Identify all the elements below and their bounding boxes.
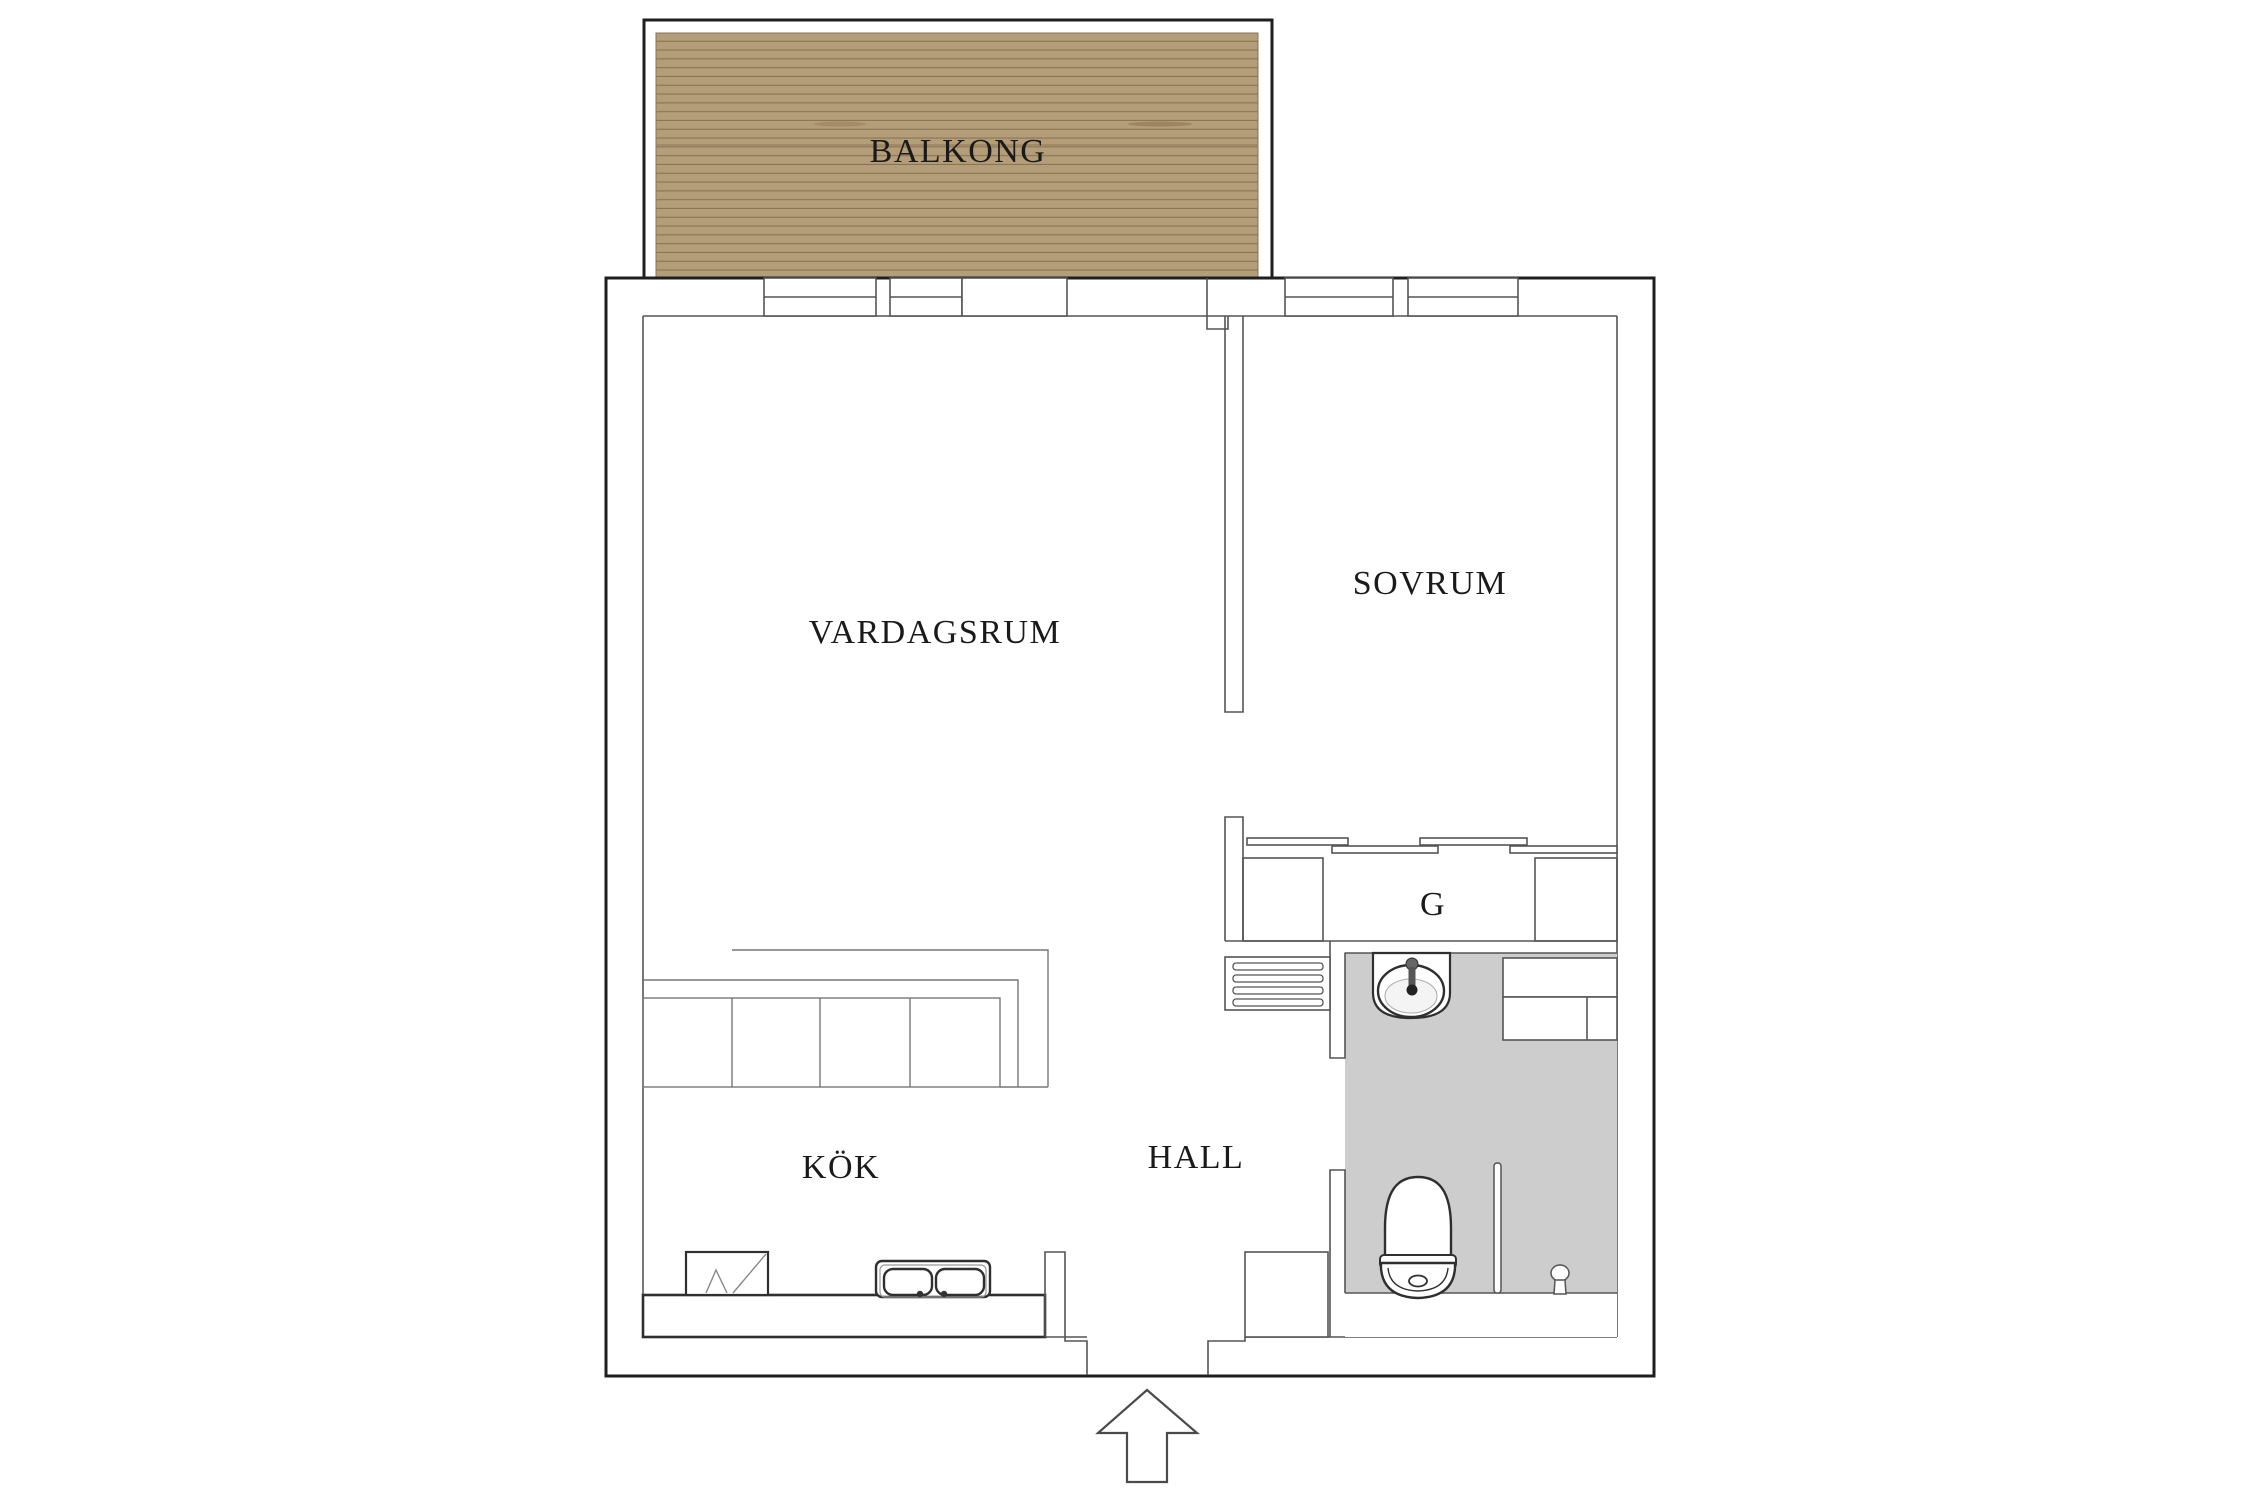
sink-bowl-left: [884, 1269, 932, 1295]
cooktop-box: [686, 1252, 768, 1295]
balcony: BALKONG: [644, 20, 1272, 278]
sliding-door-panel: [1332, 846, 1438, 853]
faucet-spout: [1407, 985, 1418, 996]
appliance-box-top: [1503, 958, 1617, 997]
sliding-door-panel: [1420, 838, 1527, 845]
entrance-arrow-icon: [1098, 1390, 1197, 1482]
hall-closet: [1245, 1252, 1328, 1337]
bedroom-label: SOVRUM: [1353, 565, 1507, 602]
radiator-slat: [1233, 975, 1323, 982]
balcony-label: BALKONG: [870, 133, 1047, 170]
balcony-door-opening: [962, 278, 1067, 316]
living-room-label: VARDAGSRUM: [809, 614, 1061, 651]
bathroom: [1330, 941, 1617, 1337]
floor-plan-canvas: BALKONG: [0, 0, 2250, 1500]
appliance-box-bottom: [1503, 997, 1617, 1040]
radiator-slat: [1233, 999, 1323, 1006]
wardrobe-label: G: [1420, 886, 1446, 923]
toilet-flush: [1409, 1276, 1427, 1287]
hall-label: HALL: [1148, 1139, 1245, 1176]
faucet-stem: [1409, 967, 1416, 987]
toilet: [1380, 1177, 1456, 1298]
bathroom-threshold-strip: [1345, 1293, 1617, 1337]
deck-knot: [814, 122, 866, 127]
deck-knot: [1128, 122, 1192, 127]
toilet-tank: [1385, 1177, 1451, 1258]
sliding-door-panel: [1510, 846, 1617, 853]
sink-drain: [917, 1291, 923, 1297]
floor-fixture-base: [1554, 1280, 1566, 1294]
shower-screen: [1494, 1163, 1501, 1293]
bathroom-left-wall-upper: [1330, 941, 1345, 1058]
kitchen-label: KÖK: [802, 1149, 880, 1186]
sink-drain: [941, 1291, 947, 1297]
sliding-door-panel: [1247, 838, 1348, 845]
kitchen-counter: [643, 1295, 1045, 1337]
floor-fixture-knob: [1551, 1265, 1569, 1281]
radiator-slat: [1233, 987, 1323, 994]
floor-plan-drawing: BALKONG: [0, 0, 2250, 1500]
double-sink: [876, 1261, 990, 1297]
radiator-slat: [1233, 963, 1323, 970]
